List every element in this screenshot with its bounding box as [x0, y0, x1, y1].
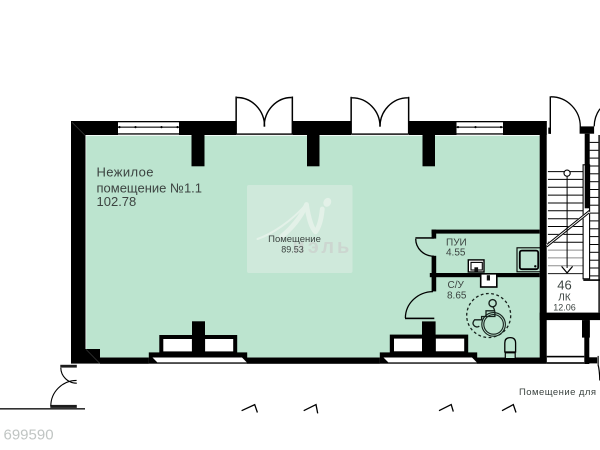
- svg-text:46: 46: [557, 277, 571, 292]
- svg-text:Нежилое: Нежилое: [97, 164, 154, 179]
- svg-text:102.78: 102.78: [97, 194, 137, 209]
- svg-text:помещение №1.1: помещение №1.1: [97, 180, 203, 195]
- svg-text:8.65: 8.65: [447, 291, 467, 302]
- svg-text:89.53: 89.53: [281, 245, 304, 255]
- svg-text:699590: 699590: [4, 427, 54, 444]
- svg-text:Помещение для обслуживания: Помещение для обслуживания: [519, 387, 600, 398]
- svg-text:Помещение: Помещение: [268, 234, 321, 245]
- svg-text:12.06: 12.06: [553, 303, 576, 313]
- svg-text:С/У: С/У: [448, 280, 465, 291]
- svg-text:4.55: 4.55: [446, 247, 466, 258]
